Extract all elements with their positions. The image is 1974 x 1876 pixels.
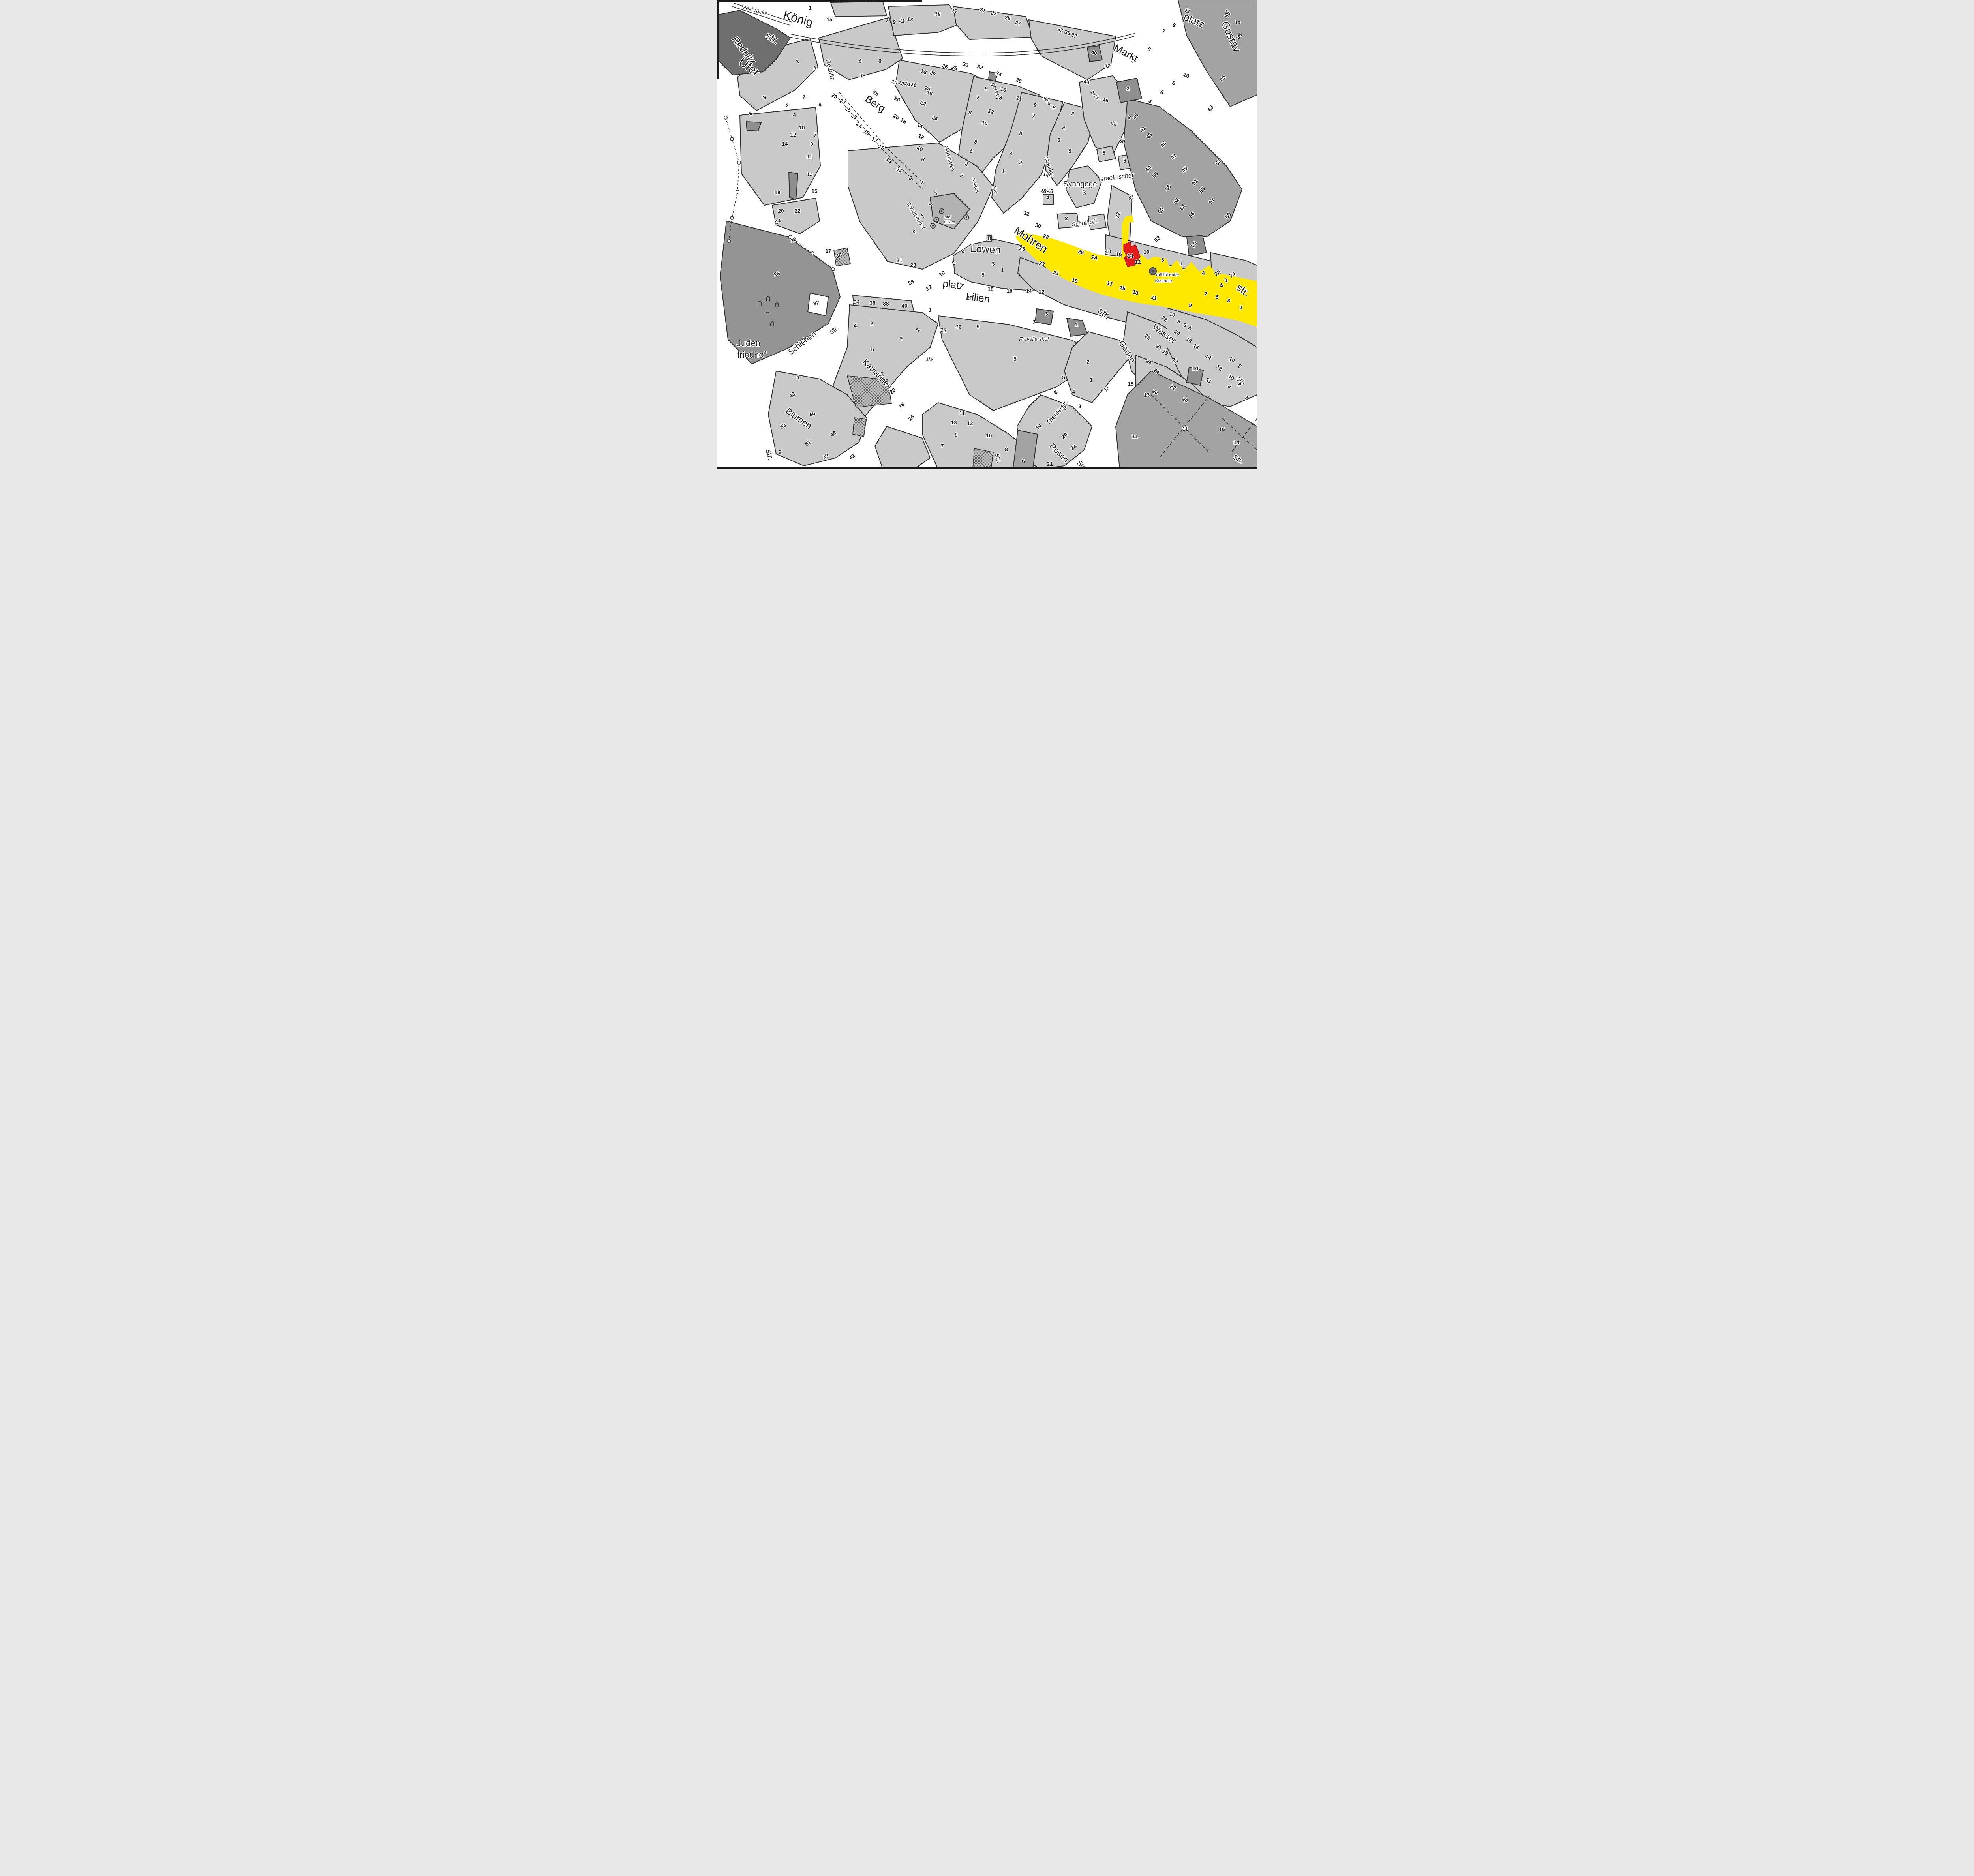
city-map: 2432464210121479111315182022242628323016… [717, 0, 1257, 469]
house-number: 2 [1126, 86, 1130, 92]
house-number: 4 [1072, 389, 1075, 395]
house-number: 5 [981, 272, 985, 278]
house-number: 1a [826, 17, 833, 23]
boundary-marker-icon [727, 239, 730, 242]
map-block [1035, 309, 1053, 325]
landmark-label: friedhof [737, 350, 766, 360]
house-number: 18 [1105, 248, 1111, 254]
house-number: 40 [901, 303, 907, 309]
landmark-label: Birken [944, 220, 955, 225]
loewenplatz-monument-icon [987, 235, 992, 242]
house-number: 3 [1078, 403, 1081, 409]
house-number: 4 [1046, 195, 1049, 201]
house-number: 6 [1022, 458, 1025, 464]
house-number: 13 [951, 420, 957, 426]
house-number: 15 [1128, 381, 1134, 387]
house-number: 5 [1102, 150, 1105, 156]
house-number: 12 [1135, 259, 1141, 265]
house-number: 1 [809, 5, 812, 11]
house-number: 17 [825, 248, 831, 254]
house-number: 13 [1144, 392, 1150, 398]
hatched-parcel [973, 448, 993, 469]
map-block [789, 172, 798, 200]
house-number: 7 [814, 132, 817, 138]
house-number: 1½ [926, 356, 933, 362]
landmark-label: Kastanie [1155, 279, 1172, 283]
house-number: 36 [869, 300, 876, 306]
tree-icon-center [932, 225, 934, 227]
hatched-parcel [853, 418, 866, 437]
tree-icon-center [941, 210, 942, 212]
house-number: 8 [1161, 257, 1164, 263]
house-number: 34 [854, 299, 860, 305]
house-number: 2 [870, 321, 873, 326]
house-number: 18 [987, 286, 994, 292]
house-number: 7 [941, 443, 944, 449]
house-number: 14 [782, 141, 788, 147]
house-number: 21 [896, 257, 903, 263]
house-number: 9 [955, 432, 958, 438]
house-number: 1 [1094, 218, 1098, 223]
house-number: 22 [794, 208, 800, 214]
house-number: 16 [1219, 426, 1225, 432]
house-number: 2 [1065, 216, 1068, 221]
house-number: 1a [1235, 19, 1241, 25]
map-block [1097, 146, 1116, 162]
scan-edge [717, 0, 719, 79]
landmark-label: Fraveliershuf [1019, 336, 1049, 342]
boundary-marker-icon [730, 137, 734, 141]
boundary-marker-icon [831, 268, 835, 271]
boundary-marker-icon [724, 116, 727, 119]
boundary-marker-icon [730, 216, 734, 219]
landmark-label: Juden [737, 338, 760, 348]
boundary-marker-icon [737, 161, 741, 164]
house-number: 18 [774, 189, 781, 195]
house-number: 13 [1192, 366, 1199, 371]
house-number: 23 [910, 262, 916, 268]
house-number: 1 [1225, 9, 1228, 15]
landmark-label: 3 [1082, 189, 1086, 197]
house-number: 4 [1202, 270, 1205, 276]
landmark-label: Synagoge [1063, 180, 1097, 188]
boundary-marker-icon [736, 190, 739, 193]
landmark-label: drei [945, 215, 951, 219]
house-number: 2 [1086, 359, 1090, 365]
house-number: 16 [1006, 288, 1013, 294]
house-number: 2 [779, 449, 782, 455]
map-block [831, 2, 887, 17]
house-number: 38 [883, 301, 889, 307]
house-number: 2 [786, 103, 789, 109]
scan-edge [717, 0, 922, 2]
house-number: 10 [1143, 249, 1149, 255]
house-number: 21 [1047, 461, 1053, 467]
house-number: 6 [1123, 158, 1126, 164]
boundary-marker-icon [811, 252, 814, 255]
tree-icon-center [936, 219, 937, 220]
house-number: 14 [1233, 439, 1240, 445]
house-number: 14 [1127, 253, 1133, 259]
house-number: 10 [986, 433, 992, 439]
house-number: 1 [1090, 377, 1093, 383]
house-number: 1 [1001, 267, 1004, 273]
tree-icon-center [966, 216, 967, 218]
scan-edge [717, 467, 1257, 469]
house-number: 11 [1182, 426, 1188, 432]
house-number: 9 [810, 141, 813, 147]
house-number: 20 [778, 208, 784, 214]
house-number: 11 [959, 410, 965, 416]
house-number: 6 [1179, 261, 1182, 266]
house-number: 13 [807, 171, 813, 177]
house-number: 11 [807, 154, 812, 159]
house-number: 12 [1038, 289, 1044, 295]
house-number: 15 [811, 188, 818, 194]
house-number: 5 [1013, 356, 1017, 362]
house-number: 16 [1116, 251, 1122, 257]
house-number: 13 [940, 327, 947, 334]
house-number: 3 [1045, 311, 1048, 317]
landmark-label: rotblühende [1156, 272, 1179, 277]
map-canvas: 2432464210121479111315182022242628323016… [717, 0, 1257, 469]
house-number: 8 [1005, 446, 1008, 452]
map-block [746, 122, 761, 131]
house-number: 10 [799, 125, 805, 131]
house-number: 1 [1075, 322, 1078, 328]
house-number: 4 [854, 323, 857, 329]
map-block [1013, 430, 1038, 469]
house-number: 12 [967, 420, 973, 426]
house-number: 12 [790, 132, 796, 138]
house-number: 3 [992, 261, 995, 267]
street-label: Löwen [970, 242, 1001, 256]
house-number: 11 [1132, 433, 1138, 439]
kastanie-tree-icon-center [1152, 270, 1154, 273]
house-number: 4 [793, 112, 796, 118]
house-number: 14 [1026, 288, 1032, 294]
